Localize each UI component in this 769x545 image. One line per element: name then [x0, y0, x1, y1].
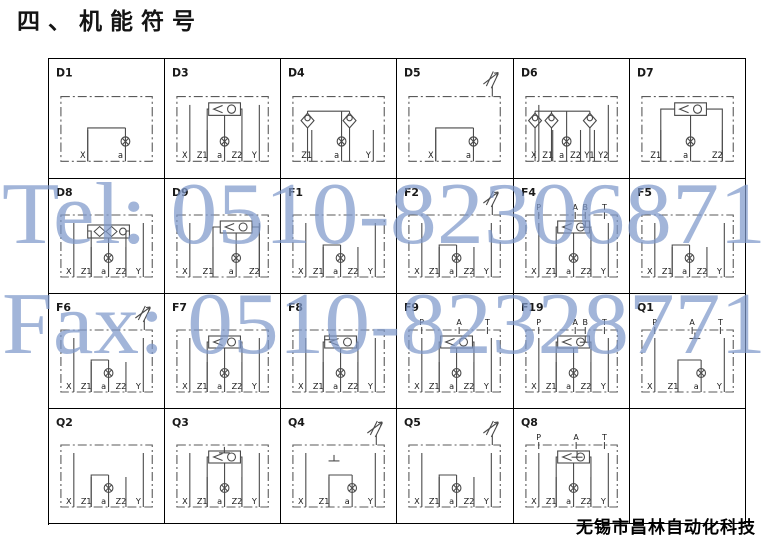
- svg-text:Y: Y: [251, 381, 257, 391]
- schematic-Q8: Q8XZ1aZ2YPAT: [514, 409, 629, 523]
- svg-text:D8: D8: [56, 186, 73, 199]
- schematic-D5: D5Xa: [397, 59, 512, 178]
- svg-text:T: T: [717, 318, 723, 327]
- svg-text:X: X: [182, 496, 188, 506]
- schematic-F19: F19XZ1aZ2YPABT: [514, 294, 629, 408]
- svg-text:P: P: [652, 318, 657, 327]
- svg-text:a: a: [217, 150, 222, 160]
- svg-text:Z1: Z1: [203, 266, 214, 276]
- svg-text:D1: D1: [56, 66, 73, 79]
- schematic-F9: F9XZ1aZ2YPAT: [397, 294, 512, 408]
- svg-text:Y: Y: [135, 381, 141, 391]
- svg-text:Z2: Z2: [464, 266, 475, 276]
- svg-text:B: B: [582, 318, 587, 327]
- schematic-F8: F8XZ1aZ2Y: [281, 294, 396, 408]
- svg-text:a: a: [450, 496, 455, 506]
- svg-text:X: X: [531, 266, 537, 276]
- svg-text:Y: Y: [716, 266, 722, 276]
- svg-text:F2: F2: [404, 186, 419, 199]
- svg-text:Z2: Z2: [696, 266, 707, 276]
- svg-text:a: a: [101, 266, 106, 276]
- svg-text:Z2: Z2: [712, 150, 723, 160]
- svg-text:F9: F9: [404, 301, 419, 314]
- svg-text:X: X: [182, 150, 188, 160]
- svg-text:X: X: [531, 496, 537, 506]
- svg-text:Z2: Z2: [232, 150, 243, 160]
- schematic-F2: F2XZ1aZ2Y: [397, 179, 512, 293]
- schematic-D7: D7Z1aZ2: [630, 59, 745, 178]
- svg-text:D9: D9: [172, 186, 189, 199]
- symbol-cell-Q8: Q8XZ1aZ2YPAT: [514, 409, 630, 524]
- svg-text:P: P: [536, 203, 541, 212]
- company-footer: 无锡市昌林自动化科技: [576, 513, 756, 538]
- symbol-cell-D5: D5Xa: [397, 59, 513, 179]
- svg-text:Z1: Z1: [429, 381, 440, 391]
- symbol-cell-D9: D9XZ1aZ2: [165, 179, 281, 294]
- svg-text:X: X: [415, 496, 421, 506]
- svg-text:Z1: Z1: [667, 381, 678, 391]
- relief-valve-icon: [368, 421, 383, 445]
- symbol-cell-Q3: Q3XZ1aZ2Y: [165, 409, 281, 524]
- symbol-cell-F5: F5XZ1aZ2Y: [630, 179, 746, 294]
- svg-text:a: a: [566, 496, 571, 506]
- svg-text:Q5: Q5: [404, 416, 421, 429]
- symbol-cell-F4: F4XZ1aZ2YPABT: [514, 179, 630, 294]
- svg-text:Y: Y: [365, 150, 372, 160]
- svg-text:a: a: [559, 150, 564, 160]
- tank-icon: [219, 447, 230, 453]
- svg-text:Z1: Z1: [662, 266, 673, 276]
- svg-text:D3: D3: [172, 66, 189, 79]
- svg-text:Z2: Z2: [580, 381, 591, 391]
- tank-icon: [329, 455, 340, 461]
- relief-valve-icon: [135, 306, 150, 330]
- relief-valve-icon: [484, 421, 499, 445]
- svg-text:Q2: Q2: [56, 416, 73, 429]
- svg-text:Z1: Z1: [546, 381, 557, 391]
- svg-text:X: X: [531, 381, 537, 391]
- svg-text:T: T: [601, 433, 607, 442]
- svg-text:F5: F5: [637, 186, 652, 199]
- svg-text:Z1: Z1: [429, 496, 440, 506]
- svg-text:Z2: Z2: [116, 266, 127, 276]
- schematic-D4: D4Z1aY: [281, 59, 396, 178]
- svg-text:A: A: [573, 433, 579, 442]
- symbol-cell-F2: F2XZ1aZ2Y: [397, 179, 513, 294]
- schematic-D8: D8XZ1aZ2Y: [49, 179, 164, 293]
- svg-text:X: X: [647, 266, 653, 276]
- svg-text:T: T: [601, 203, 607, 212]
- svg-text:Y: Y: [367, 381, 373, 391]
- svg-text:a: a: [683, 150, 688, 160]
- symbol-cell-F7: F7XZ1aZ2Y: [165, 294, 281, 409]
- svg-text:Q1: Q1: [637, 301, 654, 314]
- svg-text:F4: F4: [521, 186, 536, 199]
- svg-text:F19: F19: [521, 301, 544, 314]
- svg-text:Z2: Z2: [116, 381, 127, 391]
- symbol-cell-D6: D6XZ1aZ2Y1Y2: [514, 59, 630, 179]
- relief-valve-icon: [484, 72, 499, 97]
- svg-text:a: a: [694, 381, 699, 391]
- svg-text:Z2: Z2: [232, 496, 243, 506]
- svg-text:a: a: [101, 381, 106, 391]
- svg-text:Z2: Z2: [570, 150, 581, 160]
- svg-text:X: X: [415, 381, 421, 391]
- svg-text:Z2: Z2: [249, 266, 260, 276]
- svg-text:X: X: [66, 266, 72, 276]
- svg-text:X: X: [531, 150, 537, 160]
- schematic-F4: F4XZ1aZ2YPABT: [514, 179, 629, 293]
- svg-text:P: P: [420, 318, 425, 327]
- schematic-Q4: Q4XZ1aY: [281, 409, 396, 523]
- svg-text:T: T: [601, 318, 607, 327]
- symbol-cell-F6: F6XZ1aZ2Y: [49, 294, 165, 409]
- svg-text:Q3: Q3: [172, 416, 189, 429]
- relief-valve-icon: [484, 191, 499, 215]
- svg-text:X: X: [66, 381, 72, 391]
- svg-text:Z2: Z2: [464, 381, 475, 391]
- svg-text:Z1: Z1: [650, 150, 661, 160]
- symbol-cell-D3: D3XZ1aZ2Y: [165, 59, 281, 179]
- svg-text:Z1: Z1: [81, 381, 92, 391]
- page-title: 四、机能符号: [17, 2, 203, 36]
- svg-text:a: a: [450, 266, 455, 276]
- symbol-cell-D7: D7Z1aZ2: [630, 59, 746, 179]
- empty-cell: [630, 409, 746, 524]
- tank-icon: [571, 451, 582, 457]
- empty-schematic: [630, 409, 745, 523]
- svg-text:a: a: [333, 266, 338, 276]
- symbol-cell-Q5: Q5XZ1aZ2Y: [397, 409, 513, 524]
- svg-text:Z1: Z1: [81, 496, 92, 506]
- schematic-D3: D3XZ1aZ2Y: [165, 59, 280, 178]
- svg-text:X: X: [415, 266, 421, 276]
- svg-text:F1: F1: [288, 186, 303, 199]
- svg-text:D4: D4: [288, 66, 305, 79]
- symbol-cell-D1: D1Xa: [49, 59, 165, 179]
- schematic-Q2: Q2XZ1aZ2Y: [49, 409, 164, 523]
- schematic-F1: F1XZ1aZ2Y: [281, 179, 396, 293]
- svg-text:Z1: Z1: [546, 266, 557, 276]
- svg-text:a: a: [217, 496, 222, 506]
- svg-text:T: T: [485, 318, 491, 327]
- svg-text:Y: Y: [483, 266, 489, 276]
- svg-text:a: a: [345, 496, 350, 506]
- svg-text:X: X: [182, 381, 188, 391]
- svg-text:Z1: Z1: [429, 266, 440, 276]
- symbol-cell-D4: D4Z1aY: [281, 59, 397, 179]
- svg-text:Q4: Q4: [288, 416, 305, 429]
- schematic-Q1: Q1XZ1aYPAT: [630, 294, 745, 408]
- svg-text:a: a: [101, 496, 106, 506]
- svg-text:Y: Y: [251, 150, 258, 160]
- schematic-Q5: Q5XZ1aZ2Y: [397, 409, 512, 523]
- svg-text:A: A: [457, 318, 463, 327]
- svg-text:X: X: [428, 150, 434, 160]
- svg-text:Z2: Z2: [232, 381, 243, 391]
- svg-text:Z2: Z2: [464, 496, 475, 506]
- svg-text:a: a: [682, 266, 687, 276]
- svg-text:Z2: Z2: [348, 381, 359, 391]
- svg-text:X: X: [298, 496, 304, 506]
- svg-text:X: X: [298, 266, 304, 276]
- svg-text:Y: Y: [135, 496, 141, 506]
- symbol-cell-Q4: Q4XZ1aY: [281, 409, 397, 524]
- svg-text:F7: F7: [172, 301, 187, 314]
- svg-text:Z2: Z2: [580, 496, 591, 506]
- svg-text:Z2: Z2: [348, 266, 359, 276]
- svg-text:X: X: [66, 496, 72, 506]
- schematic-D9: D9XZ1aZ2: [165, 179, 280, 293]
- svg-text:Z1: Z1: [81, 266, 92, 276]
- svg-text:Y: Y: [367, 496, 373, 506]
- svg-text:B: B: [582, 203, 587, 212]
- svg-text:Z1: Z1: [197, 496, 208, 506]
- svg-text:X: X: [647, 381, 653, 391]
- svg-text:Y: Y: [483, 496, 489, 506]
- svg-text:Y: Y: [600, 381, 606, 391]
- svg-text:Y: Y: [600, 266, 606, 276]
- svg-text:Z1: Z1: [197, 381, 208, 391]
- symbol-cell-F19: F19XZ1aZ2YPABT: [514, 294, 630, 409]
- svg-text:Y: Y: [251, 496, 257, 506]
- svg-text:P: P: [536, 433, 541, 442]
- svg-text:Z2: Z2: [580, 266, 591, 276]
- svg-text:a: a: [566, 381, 571, 391]
- svg-text:D5: D5: [404, 66, 421, 79]
- schematic-F5: F5XZ1aZ2Y: [630, 179, 745, 293]
- svg-text:Y2: Y2: [597, 150, 608, 160]
- svg-text:a: a: [217, 381, 222, 391]
- svg-text:D6: D6: [521, 66, 538, 79]
- schematic-F6: F6XZ1aZ2Y: [49, 294, 164, 408]
- svg-text:Y: Y: [483, 381, 489, 391]
- svg-text:X: X: [298, 381, 304, 391]
- svg-text:Y: Y: [135, 266, 141, 276]
- tank-icon: [689, 332, 700, 338]
- symbol-cell-F8: F8XZ1aZ2Y: [281, 294, 397, 409]
- svg-text:A: A: [689, 318, 695, 327]
- symbol-cell-D8: D8XZ1aZ2Y: [49, 179, 165, 294]
- svg-text:Q8: Q8: [521, 416, 538, 429]
- svg-text:Z2: Z2: [116, 496, 127, 506]
- schematic-Q3: Q3XZ1aZ2Y: [165, 409, 280, 523]
- tank-icon: [324, 334, 335, 340]
- svg-text:D7: D7: [637, 66, 654, 79]
- svg-text:Y: Y: [600, 496, 606, 506]
- svg-text:a: a: [466, 150, 471, 160]
- svg-text:a: a: [118, 150, 123, 160]
- schematic-D1: D1Xa: [49, 59, 164, 178]
- svg-text:Z1: Z1: [546, 496, 557, 506]
- svg-text:X: X: [182, 266, 188, 276]
- svg-text:F6: F6: [56, 301, 71, 314]
- svg-text:Z1: Z1: [197, 150, 208, 160]
- svg-text:a: a: [229, 266, 234, 276]
- symbol-grid: D1XaD3XZ1aZ2YD4Z1aYD5XaD6XZ1aZ2Y1Y2D7Z1a…: [48, 58, 746, 525]
- symbol-cell-F9: F9XZ1aZ2YPAT: [397, 294, 513, 409]
- svg-text:A: A: [572, 203, 578, 212]
- symbol-cell-Q1: Q1XZ1aYPAT: [630, 294, 746, 409]
- svg-text:Y: Y: [367, 266, 373, 276]
- svg-text:A: A: [572, 318, 578, 327]
- svg-text:Z1: Z1: [302, 150, 313, 160]
- svg-text:a: a: [333, 381, 338, 391]
- svg-text:Y: Y: [716, 381, 722, 391]
- svg-text:Z1: Z1: [319, 496, 330, 506]
- svg-text:Y1: Y1: [583, 150, 594, 160]
- svg-text:a: a: [450, 381, 455, 391]
- symbol-cell-F1: F1XZ1aZ2Y: [281, 179, 397, 294]
- svg-text:Z1: Z1: [313, 266, 324, 276]
- svg-text:P: P: [536, 318, 541, 327]
- schematic-F7: F7XZ1aZ2Y: [165, 294, 280, 408]
- schematic-D6: D6XZ1aZ2Y1Y2: [514, 59, 629, 178]
- svg-text:F8: F8: [288, 301, 303, 314]
- symbol-cell-Q2: Q2XZ1aZ2Y: [49, 409, 165, 524]
- svg-text:a: a: [334, 150, 339, 160]
- svg-text:Z1: Z1: [313, 381, 324, 391]
- svg-text:X: X: [80, 150, 86, 160]
- svg-text:a: a: [566, 266, 571, 276]
